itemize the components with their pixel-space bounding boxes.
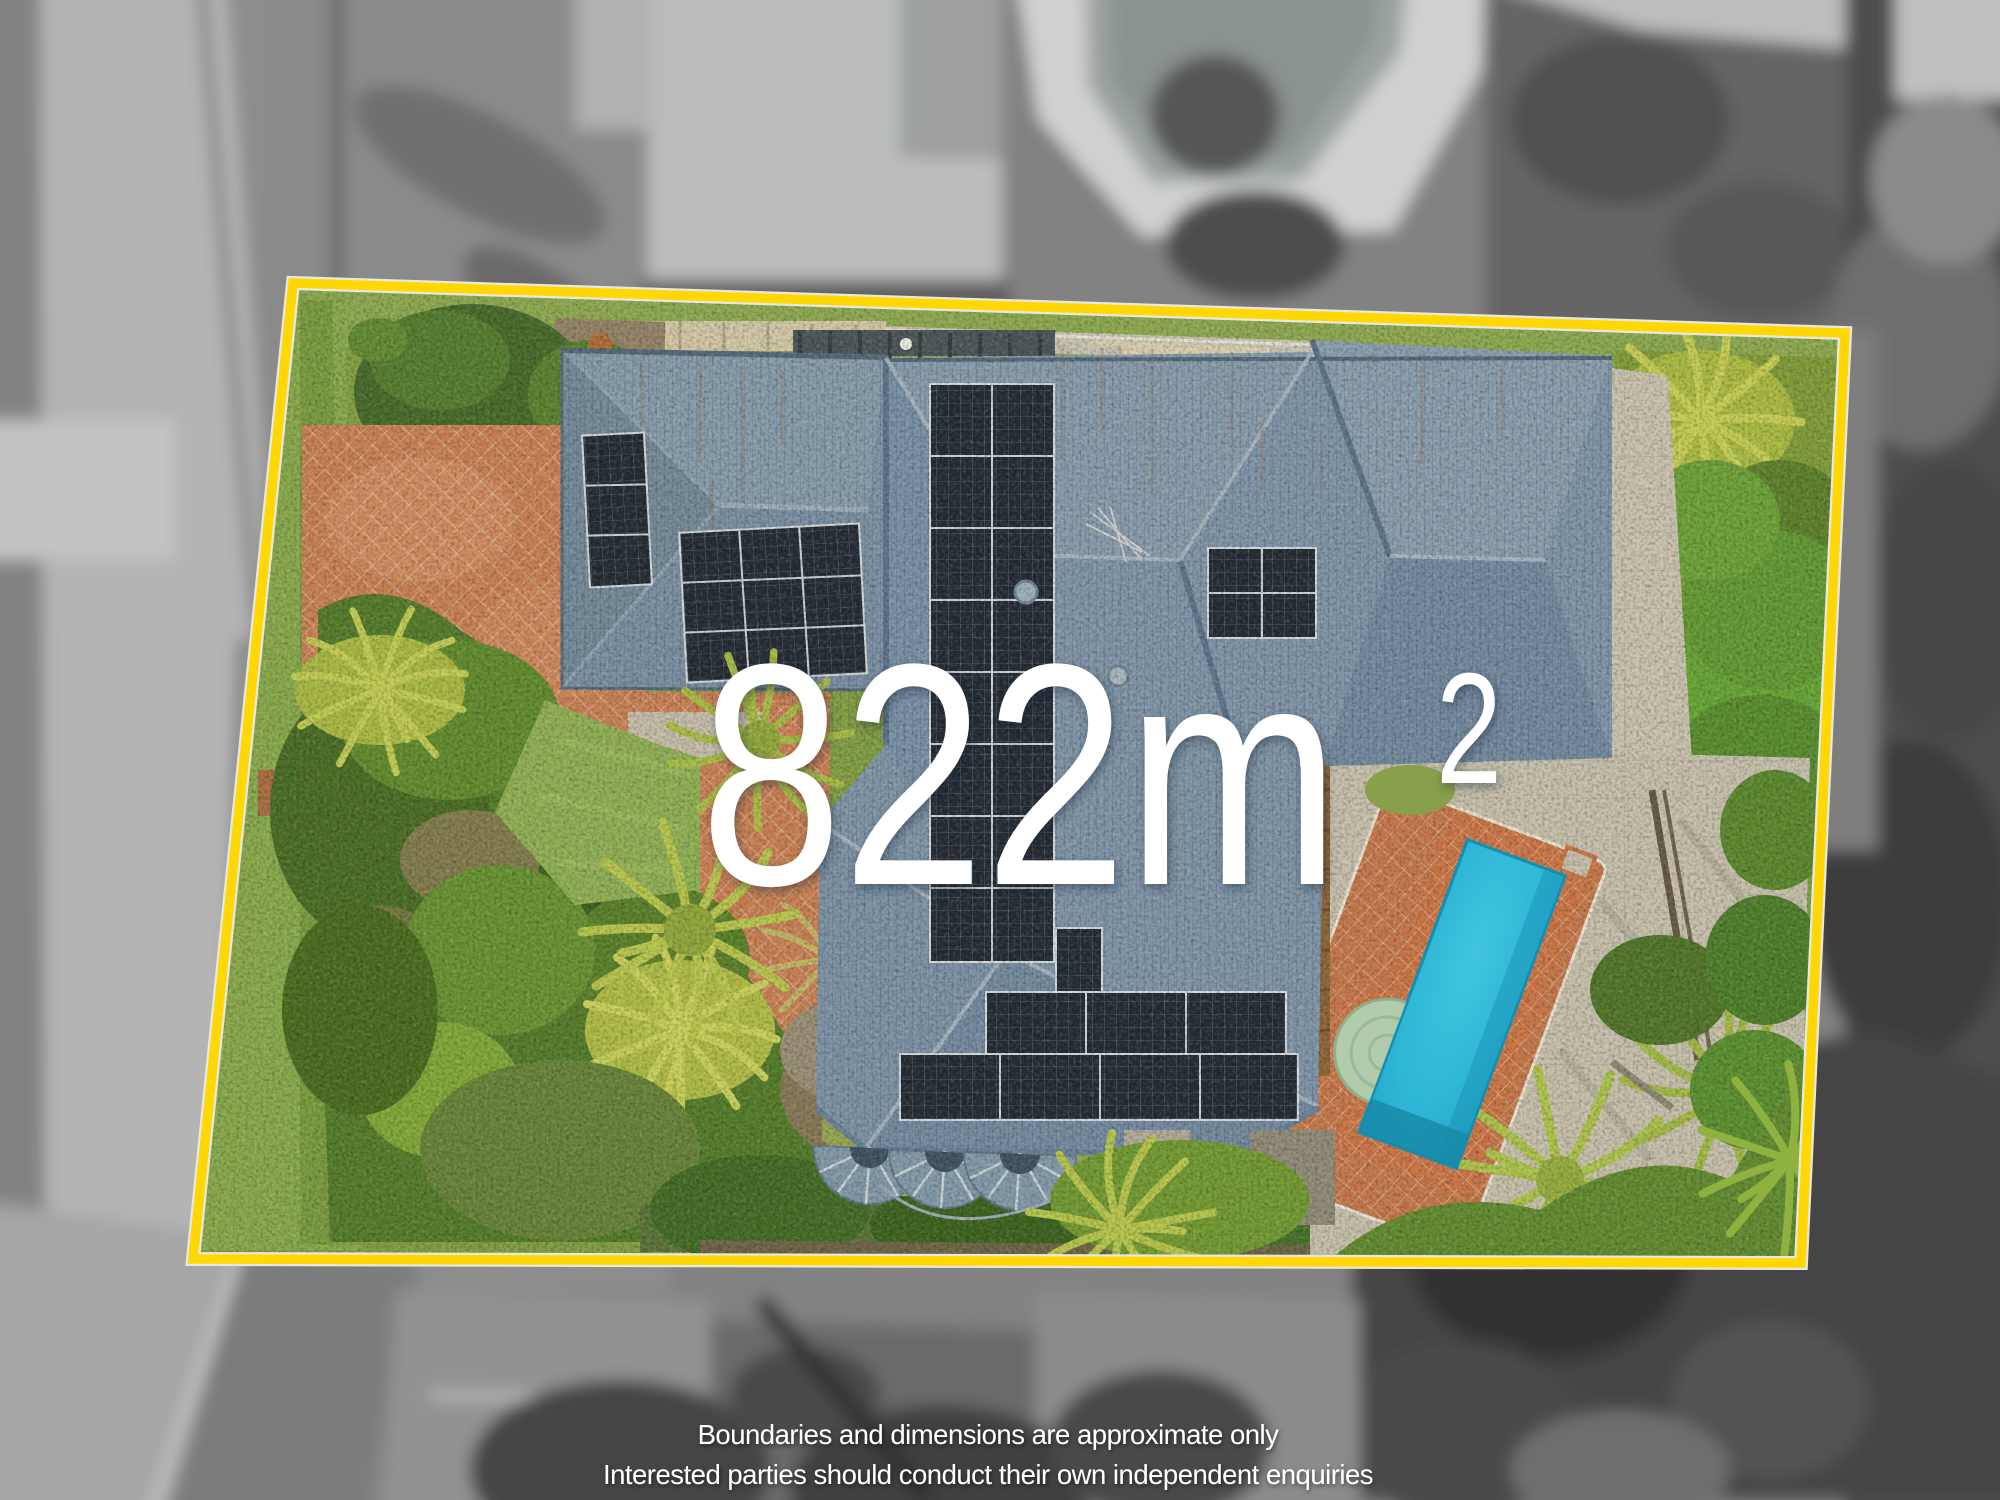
svg-text:Interested parties should cond: Interested parties should conduct their … [603,1459,1373,1490]
svg-text:Boundaries and dimensions are: Boundaries and dimensions are approximat… [698,1419,1280,1450]
svg-text:2: 2 [1436,641,1502,817]
svg-text:822m: 822m [700,598,1340,951]
